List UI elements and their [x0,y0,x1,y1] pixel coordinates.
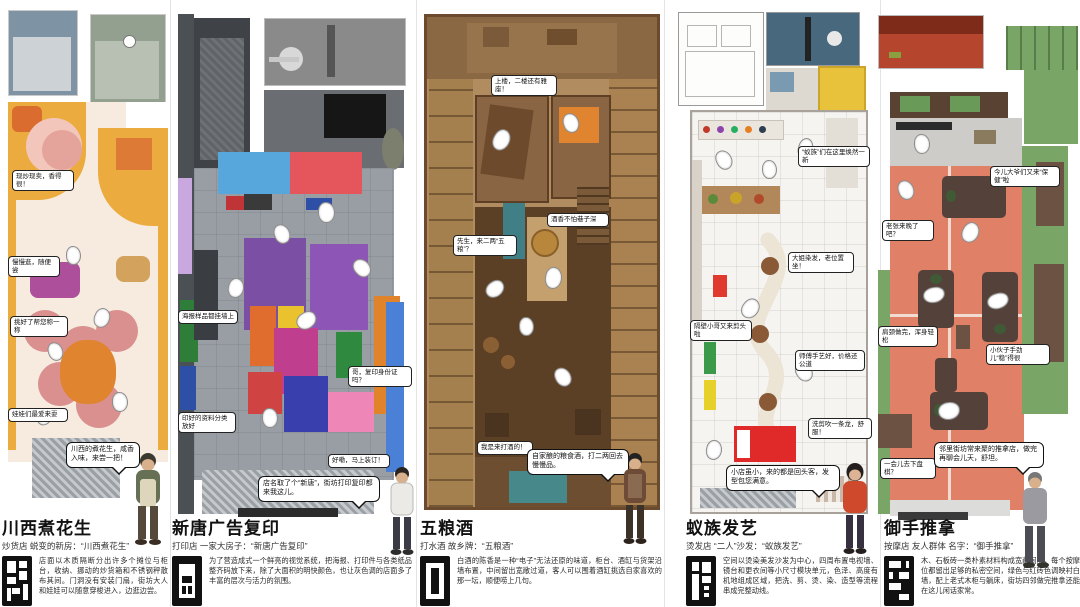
callout-label: 肩颈做完，浑身轻松 [878,326,938,347]
callout-label: 海报样品都挂墙上 [178,310,238,324]
photo-marker-icon [123,35,136,48]
wine-shelf [609,79,657,507]
person-sketch [112,392,128,412]
inset-photo [766,12,860,66]
wall-band [890,92,1008,118]
seal-wuliang-icon [420,556,450,606]
green-wall [1006,26,1078,70]
callout-label: “蚁族”们在这里焕然一新 [798,146,870,167]
floorplan-xintang: 海报样品都挂墙上 印好的资料分类放好 哥，复印身份证吗？ 好嘞，马上装订！ 店名… [178,10,410,520]
speech-bubble: 店名取了个“新唐”，街坊打印复印都来我这儿。 [258,476,380,502]
shopkeeper-figure-massage [1012,470,1058,572]
person-sketch [519,317,534,336]
wine-jar [483,337,499,353]
callout-label: 小伙子手劲儿“稳”得很 [986,344,1050,365]
floorplan-chuanxi: 现炒现卖，香得很！ 慢慢逛，随便尝 挑好了帮您称一称 娃娃们最爱来耍 川西的煮花… [8,10,168,512]
shopkeeper-figure-print [382,466,422,558]
inset-photo [878,15,984,69]
shop-subtitle: 打印店 一家大房子：“新唐广告复印” [172,540,412,552]
shop-description: 空间以烫染美发沙发为中心，四周布置电视墙、镜台和更衣间等小尺寸模块单元，色泽、高… [723,556,878,596]
shopkeeper-figure-peanut [126,452,170,548]
callout-label: 现炒现卖，香得很！ [12,170,74,191]
callout-label: 隔壁小哥又来剪头啦 [690,320,752,341]
poster: 现炒现卖，香得很！ 慢慢逛，随便尝 挑好了帮您称一称 娃娃们最爱来耍 川西的煮花… [0,0,1080,607]
worktable [310,244,368,330]
callout-label: 老张来晚了吧？ [882,220,934,241]
person-sketch [262,408,278,428]
counter-red [290,152,362,194]
floorplan-yushou: 今儿大爷们又来“保健”啦 老张来晚了吧？ 肩颈做完，浑身轻松 小伙子手劲儿“稳”… [878,14,1078,520]
entry-mat [509,471,567,503]
wood-table [700,186,780,214]
side-stand [956,325,970,349]
divider [170,0,171,607]
tv [896,122,952,130]
counter-blue [218,152,290,194]
wine-jar [531,229,559,257]
green-wall [1024,70,1078,144]
seal-yizu-icon [686,556,716,606]
callout-label: 挑好了帮您称一称 [10,316,68,337]
callout-label: 上楼，二楼还有雅座！ [491,75,557,96]
callout-label: 哥，复印身份证吗？ [348,366,412,387]
speech-bubble: 小店虽小，来的都是回头客，发型包您满意。 [726,465,840,491]
shop-title: 新唐广告复印 [172,514,412,539]
callout-label: 好嘞，马上装订！ [328,454,390,468]
inset-sketch-bed [678,12,764,106]
shopkeeper-figure-salon [834,462,876,560]
plant [382,128,404,170]
person-sketch [914,134,930,154]
callout-label: 先生，来二两“五粮”？ [453,235,517,256]
inset-photo [8,10,78,96]
storage-room [194,18,250,168]
shop-description: 白酒的陈香是一种“电子”无法还原的味道，柜台、酒缸与货架沿墙布置，中间留出宽敞过… [457,556,662,586]
callout-label: 酒香不怕巷子深 [547,213,609,227]
callout-label: 师傅手艺好，价格还公道 [795,350,865,371]
massage-table [935,358,957,392]
crate [547,29,577,45]
callout-label: 大姐染发，老位置坐！ [788,252,854,273]
display-counter [698,120,784,140]
person-sketch [762,160,777,179]
callout-label: 印好的资料分类放好 [178,412,236,433]
callout-label: 一会儿去下盘棋？ [880,458,936,479]
callout-label: 今儿大爷们又来“保健”啦 [990,166,1060,187]
caption-xintang: 新唐广告复印 打印店 一家大房子：“新唐广告复印” 为了营造成式一个鲜亮的视觉系… [172,514,412,606]
person-sketch [66,246,81,265]
seal-yushou-icon [884,556,914,606]
speech-bubble: 邻里街坊常来聚的推拿店，做完再聊会儿天，舒坦。 [934,442,1044,468]
inset-photo [90,14,166,104]
cabinet [878,414,912,448]
entry-mat [700,488,796,508]
callout-label: 我是来打酒的！ [477,441,533,455]
seal-xintang-icon [172,556,202,606]
wine-jar [501,355,515,369]
shop-description: 店面以木质隔断分出许多个摊位与柜台，收纳、挪动的炒货箱和不锈钢秤散布其间。门洞没… [39,556,168,596]
wine-shelf [429,79,473,507]
person-sketch [318,202,335,223]
red-daybed [734,426,796,462]
seal-chuanxi-icon [2,556,32,606]
divider [664,0,665,607]
crate [483,27,509,47]
floorplan-yizu: “蚁族”们在这里焕然一新 大姐染发，老位置坐！ 隔壁小哥又来剪头啦 师傅手艺好，… [676,10,878,518]
shopkeeper-figure-liquor [614,452,656,548]
floorplan-wuliang: 上楼，二楼还有雅座！ 先生，来二两“五粮”？ 酒香不怕巷子深 我是来打酒的！ 自… [424,14,660,510]
tasting-room [475,95,549,203]
shop-description: 为了营造成式一个鲜亮的视觉系统，把海报、打印件与各类纸品整齐码放下来，除了大面积… [209,556,412,586]
inset-photo [264,18,406,86]
callout-label: 娃娃们最爱来耍 [8,408,68,422]
tasting-room [551,95,611,199]
callout-label: 洗剪吹一条龙，舒服！ [808,418,872,439]
callout-label: 慢慢逛，随便尝 [8,256,60,277]
